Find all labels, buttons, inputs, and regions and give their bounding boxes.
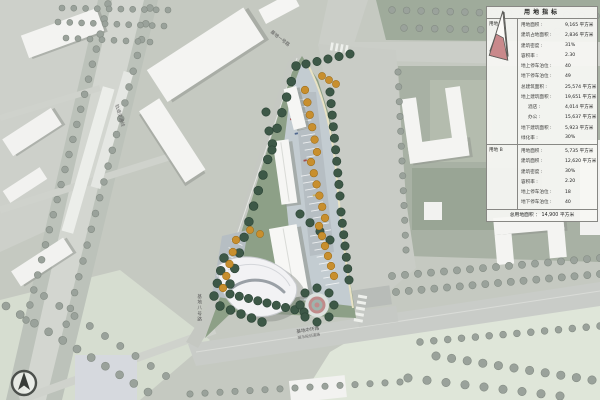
indicator-row: 地上建筑面积 :19,651 平方米	[521, 92, 597, 102]
indicator-row: 用地面积 :9,165 平方米	[521, 20, 597, 30]
indicator-row: 建筑占地面积 :2,836 平方米	[521, 30, 597, 40]
parcel-b-section: 用地 B 用地面积 :5,735 平方米建筑面积 :12,620 平方米建筑密度…	[487, 145, 597, 210]
indicator-row: 地上停车泊位 :40	[521, 61, 597, 71]
indicator-table: 用地指标 用地 A 用地面积 :9,165 平方米建筑占地面积 :2,836 平…	[486, 6, 598, 222]
indicator-row: 建筑密度 :31%	[521, 41, 597, 51]
parcel-b-shape-icon	[487, 9, 511, 63]
indicator-row: 总建筑面积 :25,574 平方米	[521, 82, 597, 92]
indicator-row: 地下停车泊位 :40	[521, 197, 597, 207]
indicator-row: 地下建筑面积 :5,923 平方米	[521, 123, 597, 133]
indicator-row: 地上停车泊位 :18	[521, 187, 597, 197]
parcel-b-rows: 用地面积 :5,735 平方米建筑面积 :12,620 平方米建筑密度 :30%…	[518, 145, 597, 209]
indicator-row: 建筑面积 :12,620 平方米	[521, 156, 597, 166]
indicator-row: 用地面积 :5,735 平方米	[521, 146, 597, 156]
indicator-row: 地下停车泊位 :49	[521, 71, 597, 81]
indicator-row: 办公 :15,637 平方米	[521, 112, 597, 122]
north-arrow-icon	[12, 371, 36, 395]
circular-plaza	[305, 293, 329, 317]
indicator-row: 容积率 :2.20	[521, 177, 597, 187]
indicator-row: 绿化率 :30%	[521, 133, 597, 143]
parcel-b-name: 用地 B	[489, 147, 516, 153]
parcel-b-side: 用地 B	[487, 145, 518, 209]
indicator-row: 容积率 :2.30	[521, 51, 597, 61]
parcel-a-rows: 用地面积 :9,165 平方米建筑占地面积 :2,836 平方米建筑密度 :31…	[518, 19, 597, 144]
indicator-table-total: 总用地面积 ： 14,900 平方米	[487, 210, 597, 221]
indicator-row: 建筑密度 :30%	[521, 167, 597, 177]
indicator-row: 酒店 :4,014 平方米	[521, 102, 597, 112]
site-plan-page: 基地中环路 城市规划道路 基地八号路 基地一号路 轨道交通线 用地指标 用地 A…	[0, 0, 600, 400]
